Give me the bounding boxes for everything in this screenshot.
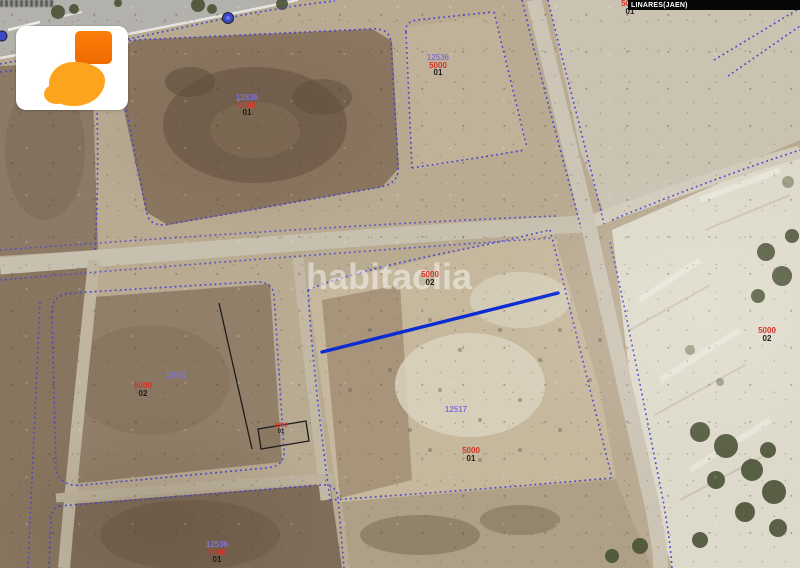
parcel-label: 5000 02 [421, 271, 439, 286]
parcel-label: 12536 5000 01 [236, 94, 258, 117]
coordinate-readout-fragment [0, 0, 54, 7]
habitaclia-logo [16, 26, 128, 110]
parcel-label: 5000 01 [274, 424, 287, 435]
parcel-label: 12536 5000 01 [427, 54, 449, 77]
subparcel-number: 01 [427, 69, 449, 77]
logo-blob-icon [44, 84, 70, 104]
subparcel-number: 02 [758, 335, 776, 343]
polygon-number: 12517 [445, 406, 467, 414]
parcel-label: 5000 02 [134, 382, 152, 397]
map-canvas[interactable]: habitaclia 5000 01 12536 5000 01 12536 5… [0, 0, 800, 568]
subparcel-number: 02 [421, 279, 439, 287]
parcel-label: 5000 02 [758, 327, 776, 342]
subparcel-number: 01 [206, 556, 228, 564]
subparcel-number: 01 [462, 455, 480, 463]
parcel-label: 12517 [445, 406, 467, 414]
subparcel-number: 02 [134, 390, 152, 398]
subparcel-number: 01 [236, 109, 258, 117]
parcel-label: 12517 [165, 372, 187, 380]
parcel-label: 5000 01 [462, 447, 480, 462]
logo-square-icon [75, 31, 112, 64]
polygon-number: 12517 [165, 372, 187, 380]
subparcel-number: 01 [274, 430, 287, 436]
municipality-label: LINARES(JAEN) [628, 0, 800, 10]
parcel-label: 12536 5000 01 [206, 541, 228, 564]
habitaclia-watermark: habitaclia [306, 256, 472, 298]
